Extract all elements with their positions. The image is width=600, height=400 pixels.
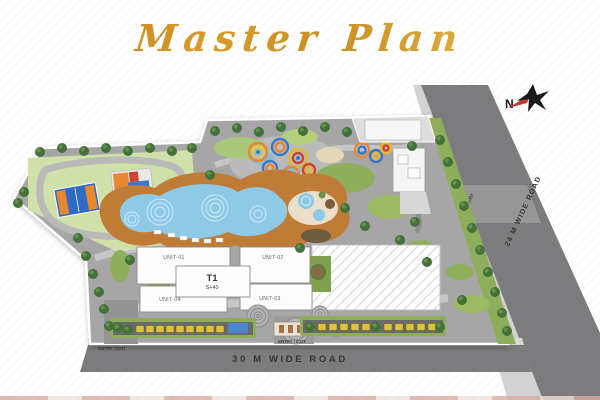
parking-row-left (110, 318, 256, 338)
compass: N (505, 84, 549, 112)
unit-02-label: UNIT-02 (262, 255, 283, 261)
unit-03-label: UNIT-03 (259, 296, 280, 302)
tower-floors: S+40 (206, 285, 219, 291)
compass-star-icon (517, 84, 549, 112)
hatched-building-footprint (312, 245, 440, 310)
bottom-road-label: 30 M WIDE ROAD (232, 354, 348, 365)
pool-island-planter (301, 229, 331, 243)
unit-01-label: UNIT-01 (163, 255, 184, 261)
master-plan-page: Master Plan 24 M WIDE ROAD ENTRY / EXIT (0, 0, 600, 400)
tower-name: T1 (206, 273, 218, 284)
compass-north-label: N (505, 97, 514, 111)
bottom-section-edge (0, 396, 600, 400)
entry-exit-center-label: ENTRY / EXIT (278, 339, 306, 344)
site-plan-drawing: 24 M WIDE ROAD ENTRY / EXIT 30 M WIDE RO… (0, 0, 600, 400)
kids-pool (288, 191, 338, 225)
parking-row-right (300, 316, 446, 336)
shade-canopy (228, 323, 248, 333)
unit-04-label: UNIT-04 (159, 297, 180, 303)
entry-exit-left-label: ENTRY / EXIT (98, 346, 126, 351)
